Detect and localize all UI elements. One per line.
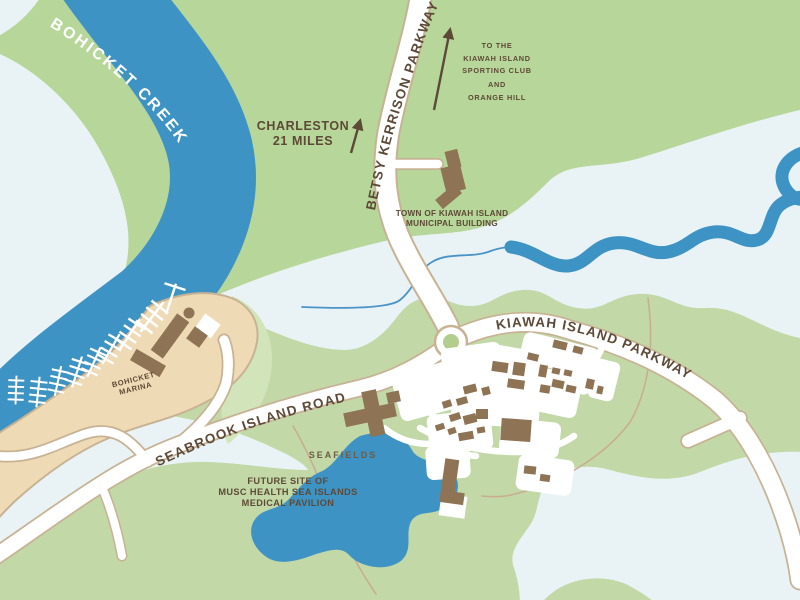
svg-text:CHARLESTON: CHARLESTON [257, 119, 350, 133]
svg-text:TOWN OF KIAWAH ISLAND: TOWN OF KIAWAH ISLAND [396, 209, 509, 218]
svg-text:MUSC HEALTH SEA ISLANDS: MUSC HEALTH SEA ISLANDS [218, 487, 357, 497]
svg-text:MUNICIPAL BUILDING: MUNICIPAL BUILDING [406, 219, 498, 228]
svg-text:SPORTING CLUB: SPORTING CLUB [462, 66, 532, 75]
map-canvas: BOHICKET CREEK BETSY KERRISON PARKWAY KI… [0, 0, 800, 600]
svg-text:ORANGE HILL: ORANGE HILL [468, 93, 526, 102]
svg-text:21 MILES: 21 MILES [273, 134, 333, 148]
svg-text:AND: AND [488, 80, 506, 89]
svg-text:MEDICAL PAVILION: MEDICAL PAVILION [242, 498, 335, 508]
map-stage: BOHICKET CREEK BETSY KERRISON PARKWAY KI… [0, 0, 800, 600]
svg-text:TO THE: TO THE [482, 41, 513, 50]
svg-text:FUTURE SITE OF: FUTURE SITE OF [247, 476, 328, 486]
label-municipal-building: TOWN OF KIAWAH ISLAND MUNICIPAL BUILDING [396, 209, 509, 228]
label-seafields: SEAFIELDS [309, 450, 378, 460]
svg-text:KIAWAH ISLAND: KIAWAH ISLAND [463, 54, 530, 63]
